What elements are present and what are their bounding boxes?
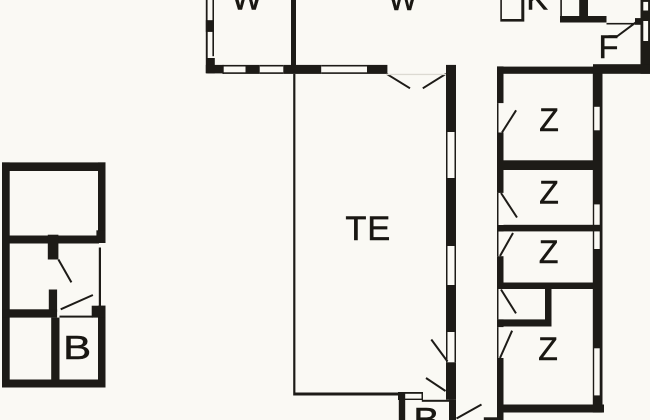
svg-text:W: W — [388, 0, 418, 17]
svg-text:Z: Z — [538, 331, 558, 367]
svg-text:Z: Z — [539, 102, 559, 138]
svg-text:Z: Z — [539, 175, 559, 211]
svg-text:Z: Z — [539, 234, 559, 270]
svg-text:B: B — [413, 401, 439, 420]
svg-text:W: W — [231, 0, 263, 17]
svg-text:F: F — [599, 29, 619, 65]
svg-text:K: K — [526, 0, 548, 16]
svg-text:TE: TE — [345, 210, 391, 248]
svg-text:B: B — [63, 330, 91, 367]
